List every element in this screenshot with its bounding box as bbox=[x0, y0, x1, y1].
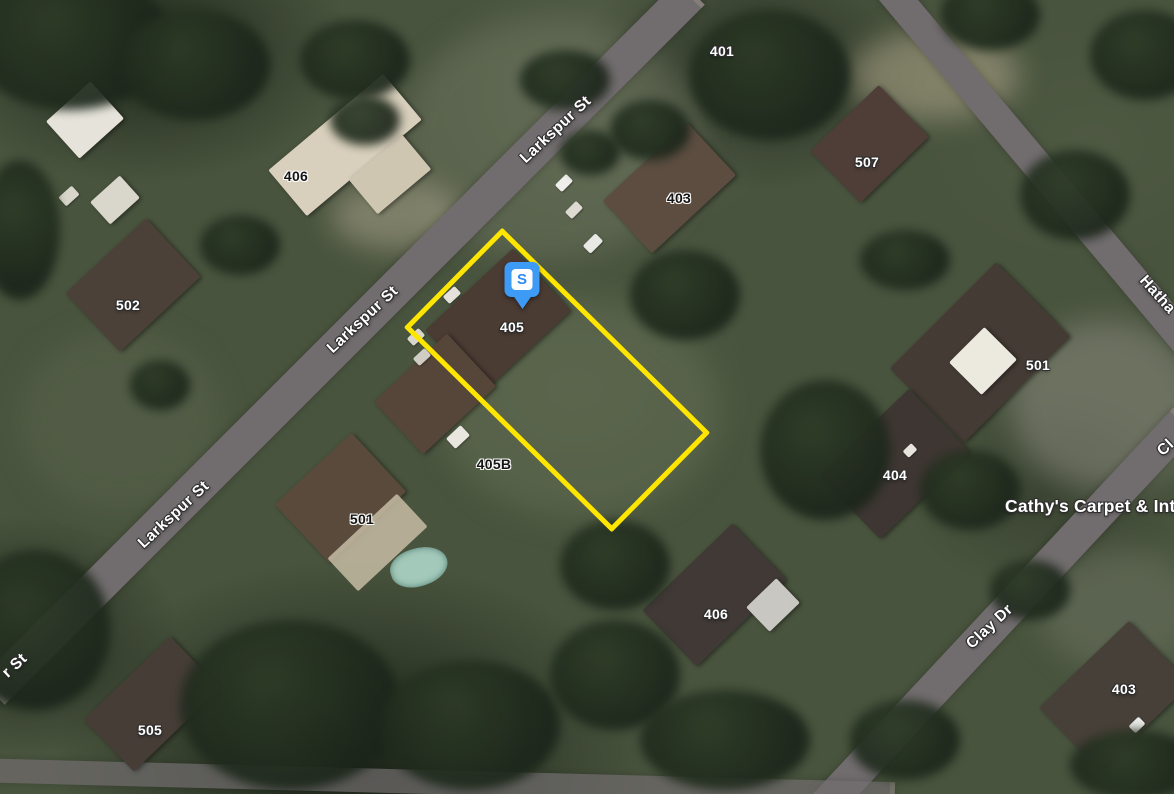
address-label: 406 bbox=[704, 606, 728, 622]
tree bbox=[520, 50, 610, 110]
marker-letter: S bbox=[517, 271, 527, 288]
tree bbox=[200, 215, 280, 275]
marker-pin: S bbox=[505, 262, 540, 297]
satellite-map[interactable]: Larkspur St Larkspur St Larkspur St r St… bbox=[0, 0, 1174, 794]
tree bbox=[920, 450, 1020, 530]
tree bbox=[760, 380, 890, 520]
tree bbox=[1020, 150, 1130, 240]
tree bbox=[1090, 10, 1174, 100]
tree bbox=[300, 20, 410, 100]
tree bbox=[330, 95, 400, 145]
tree bbox=[560, 520, 670, 610]
address-label: 403 bbox=[1112, 681, 1136, 697]
tree bbox=[130, 360, 190, 410]
tree bbox=[380, 660, 560, 790]
tree bbox=[640, 690, 810, 790]
building bbox=[65, 218, 200, 352]
address-label: 507 bbox=[855, 154, 879, 170]
tree bbox=[560, 130, 620, 175]
address-label: 404 bbox=[883, 467, 907, 483]
marker-badge: S bbox=[512, 269, 533, 290]
address-label: 502 bbox=[116, 297, 140, 313]
address-label: 505 bbox=[138, 722, 162, 738]
building bbox=[90, 175, 140, 224]
tree bbox=[120, 10, 270, 120]
marker-pin-tip bbox=[513, 296, 531, 309]
tree bbox=[630, 250, 740, 340]
map-marker[interactable]: S bbox=[505, 262, 540, 309]
tree bbox=[850, 700, 960, 780]
address-label: 406 bbox=[284, 168, 308, 184]
tree bbox=[860, 230, 950, 290]
vehicle bbox=[58, 186, 79, 207]
tree bbox=[690, 10, 850, 140]
tree bbox=[180, 620, 400, 790]
tree bbox=[610, 100, 690, 160]
place-label[interactable]: Cathy's Carpet & Int bbox=[1005, 496, 1174, 517]
address-label: 403 bbox=[667, 190, 691, 206]
address-label: 401 bbox=[710, 43, 734, 59]
address-label: 405B bbox=[477, 456, 512, 472]
tree bbox=[0, 160, 60, 300]
address-label: 501 bbox=[350, 511, 374, 527]
address-label: 501 bbox=[1026, 357, 1050, 373]
address-label: 405 bbox=[500, 319, 524, 335]
